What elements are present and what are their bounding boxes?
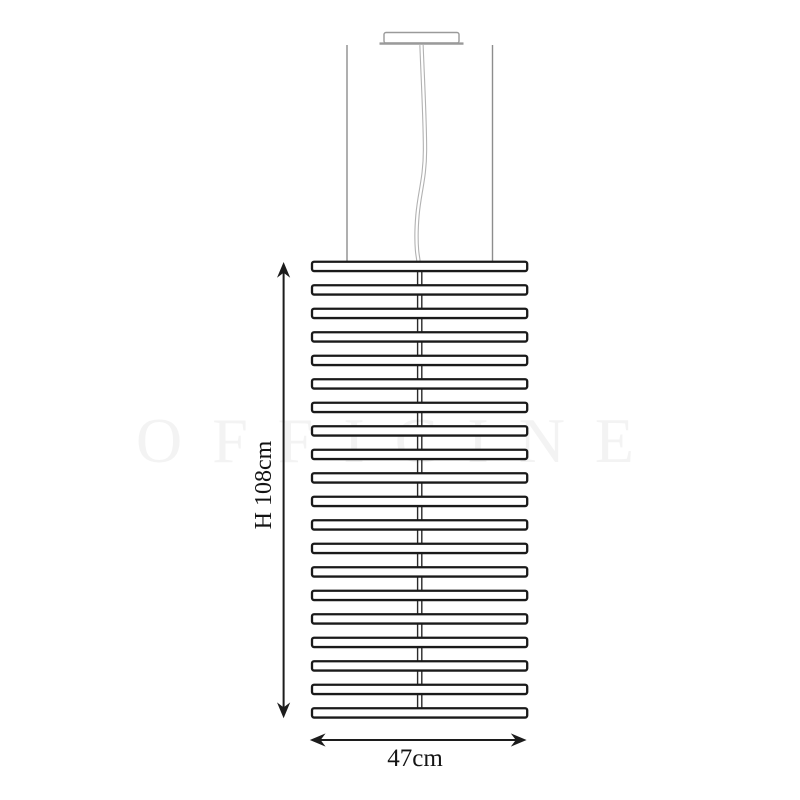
- svg-text:OFFICINE: OFFICINE: [136, 405, 664, 476]
- svg-text:47cm: 47cm: [387, 745, 443, 772]
- svg-text:H 108cm: H 108cm: [251, 440, 277, 529]
